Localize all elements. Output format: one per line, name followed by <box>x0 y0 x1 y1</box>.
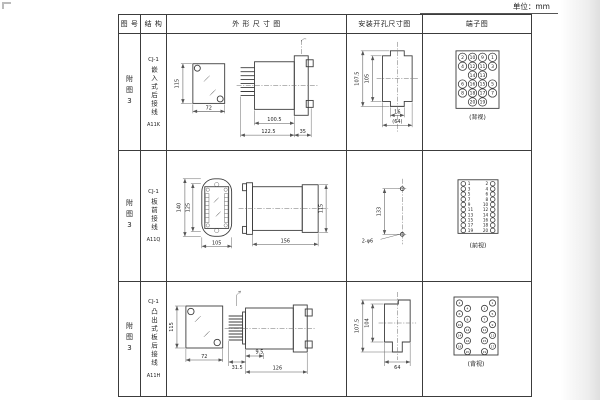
dim-label: 72 <box>206 105 212 111</box>
figure-number: 附图3 <box>125 75 135 109</box>
dim-label: 107.5 <box>354 319 360 333</box>
terminal-circle <box>461 192 466 197</box>
row3-terminal-cell: 2610141848121620371115191591317 (背视) <box>423 282 531 396</box>
terminal-circle <box>490 223 495 228</box>
dim-label: 105 <box>212 240 221 246</box>
terminal-number: 10 <box>458 323 462 327</box>
terminal-number: 14 <box>458 334 462 338</box>
dim-label: 64 <box>394 365 400 371</box>
terminal-number: 2 <box>459 301 461 305</box>
dim-label: 133 <box>377 207 383 216</box>
row1-outline-drawing: 115 72 100.5 <box>167 34 346 150</box>
terminal-number: 19 <box>468 228 474 233</box>
row2-terminal-drawing: 1357911131517192468101214161820 (前视) <box>423 151 531 281</box>
terminal-number: 7 <box>491 91 494 97</box>
row3-structure-cell: CJ-1 凸出式板后接线 A11H <box>141 282 167 396</box>
terminal-number: 6 <box>459 312 461 316</box>
row1-structure-cell: CJ-1 嵌入式后接线 A11K <box>141 34 167 151</box>
terminal-number: 11 <box>483 328 487 332</box>
front-dimensions: 115 72 <box>169 306 223 362</box>
row2-mounting-cell: 133 2-φ6 <box>347 151 423 282</box>
terminal-grid: 1357911131517192468101214161820 <box>461 181 495 233</box>
terminal-number: 16 <box>466 339 470 343</box>
row3-outline-drawing: 115 72 31.5 <box>167 282 346 396</box>
dim-label: 115 <box>319 204 325 213</box>
row1-terminal-drawing: 2109141211314136161558181772019 (背视) <box>423 34 531 150</box>
structure-model: CJ-1 <box>148 189 159 195</box>
terminal-number: 3 <box>484 307 486 311</box>
terminal-number: 5 <box>491 82 494 88</box>
terminal-number: 18 <box>470 91 476 97</box>
terminal-number: 13 <box>491 334 495 338</box>
terminal-circle <box>490 228 495 233</box>
header-structure: 结 构 <box>141 15 167 34</box>
front-dimensions: 140 125 105 <box>176 179 231 248</box>
terminal-circle <box>461 228 466 233</box>
terminal-circle <box>461 213 466 218</box>
row2-mounting-drawing: 133 2-φ6 <box>347 151 422 281</box>
terminal-circle <box>461 187 466 192</box>
unit-label: 单位：mm <box>420 1 558 14</box>
row1-outline-cell: 115 72 100.5 <box>167 34 347 151</box>
terminal-number: 11 <box>480 64 486 70</box>
terminal-number: 4 <box>461 64 464 70</box>
structure-model: CJ-1 <box>148 299 159 305</box>
terminal-number: 18 <box>458 344 462 348</box>
terminal-number: 1 <box>492 301 494 305</box>
terminal-number: 8 <box>467 317 469 321</box>
row1-terminal-cell: 2109141211314136161558181772019 (背视) <box>423 34 531 151</box>
cutout-dimensions: 107.5 105 16 (64) <box>354 51 412 127</box>
side-view <box>225 291 316 352</box>
terminal-grid: 2109141211314136161558181772019 <box>458 53 496 106</box>
structure-desc: 板前接线 <box>149 198 159 232</box>
terminal-circle <box>490 213 495 218</box>
terminal-number: 17 <box>491 344 495 348</box>
terminal-number: 20 <box>470 100 476 106</box>
view-label: (前视) <box>470 241 487 249</box>
front-view <box>186 306 223 348</box>
row2-outline-drawing: 140 125 105 <box>167 151 346 281</box>
terminal-number: 12 <box>470 64 476 70</box>
terminal-number: 9 <box>492 323 494 327</box>
structure-code: A11Q <box>147 237 161 243</box>
terminal-number: 20 <box>483 228 489 233</box>
header-fig-no: 图 号 <box>119 15 141 34</box>
terminal-number: 3 <box>491 64 494 70</box>
terminal-number: 6 <box>461 82 464 88</box>
figure-number: 附图3 <box>125 322 135 356</box>
terminal-number: 8 <box>461 91 464 97</box>
row3-mounting-drawing: 107.5 104 64 <box>347 282 422 396</box>
dim-label: 122.5 <box>261 129 275 135</box>
dim-label: (64) <box>392 119 402 125</box>
terminal-circle <box>461 218 466 223</box>
figure-number: 附图3 <box>125 199 135 233</box>
row2-outline-cell: 140 125 105 <box>167 151 347 282</box>
dim-label: 126 <box>273 365 282 371</box>
front-dimensions: 115 72 <box>174 64 224 114</box>
terminal-circle <box>490 192 495 197</box>
manual-page: 单位：mm 图 号 结 构 外 形 尺 寸 图 安装开孔尺寸图 端子图 附图3 … <box>0 0 600 400</box>
terminal-number: 2 <box>461 55 464 61</box>
terminal-number: 5 <box>492 312 494 316</box>
side-dimensions: 31.5 9.5 126 <box>229 341 308 374</box>
cutout-profile <box>379 292 417 360</box>
terminal-circle <box>461 181 466 186</box>
row2-structure-cell: CJ-1 板前接线 A11Q <box>141 151 167 282</box>
terminal-number: 17 <box>480 91 486 97</box>
terminal-number: 16 <box>470 82 476 88</box>
terminal-number: 12 <box>466 328 470 332</box>
row1-mounting-drawing: 107.5 105 16 (64) <box>347 34 422 150</box>
terminal-number: 7 <box>484 317 486 321</box>
dim-label: 9.5 <box>256 349 264 355</box>
row1-figure-cell: 附图3 <box>119 34 141 151</box>
dimension-table: 图 号 结 构 外 形 尺 寸 图 安装开孔尺寸图 端子图 附图3 CJ-1 嵌… <box>118 14 532 397</box>
structure-desc: 嵌入式后接线 <box>149 66 159 117</box>
structure-code: A11K <box>147 122 160 128</box>
front-view <box>193 64 225 104</box>
dim-label: 115 <box>169 322 175 332</box>
row3-outline-cell: 115 72 31.5 <box>167 282 347 396</box>
side-view <box>237 39 319 116</box>
terminal-circle <box>490 218 495 223</box>
dim-label: 104 <box>365 318 371 328</box>
terminal-circle <box>490 181 495 186</box>
row3-terminal-drawing: 2610141848121620371115191591317 (背视) <box>423 282 531 396</box>
dim-label: 105 <box>365 74 371 83</box>
terminal-circle <box>490 197 495 202</box>
structure-desc: 凸出式板后接线 <box>149 308 159 368</box>
dim-label: 140 <box>176 203 182 212</box>
dim-label: 16 <box>394 109 400 115</box>
scan-corner-mark <box>2 2 11 9</box>
terminal-number: 4 <box>467 307 469 311</box>
side-view <box>239 183 329 235</box>
terminal-number: 19 <box>480 100 486 106</box>
dim-label: 100.5 <box>267 117 281 123</box>
terminal-circle <box>490 187 495 192</box>
dim-label: 156 <box>281 238 290 244</box>
header-terminal: 端子图 <box>423 15 531 34</box>
hole-dimensions: 133 2-φ6 <box>362 189 403 245</box>
row3-mounting-cell: 107.5 104 64 <box>347 282 423 396</box>
hole-callout: 2-φ6 <box>362 238 373 244</box>
structure-code: A11H <box>147 373 161 379</box>
structure-model: CJ-1 <box>148 57 159 63</box>
terminal-circle <box>461 202 466 207</box>
view-label: (背视) <box>469 113 486 121</box>
terminal-number: 15 <box>483 339 487 343</box>
row2-terminal-cell: 1357911131517192468101214161820 (前视) <box>423 151 531 282</box>
dim-label: 31.5 <box>232 365 243 371</box>
dim-label: 115 <box>174 79 180 88</box>
terminal-number: 10 <box>470 55 476 61</box>
terminal-grid: 2610141848121620371115191591317 <box>456 300 495 355</box>
terminal-circle <box>490 202 495 207</box>
row2-figure-cell: 附图3 <box>119 151 141 282</box>
terminal-circle <box>461 223 466 228</box>
terminal-circle <box>461 207 466 212</box>
terminal-number: 13 <box>480 73 486 79</box>
front-view <box>202 179 232 237</box>
terminal-number: 1 <box>491 55 494 61</box>
terminal-circle <box>461 197 466 202</box>
terminal-number: 9 <box>481 55 484 61</box>
row1-mounting-cell: 107.5 105 16 (64) <box>347 34 423 151</box>
terminal-number: 20 <box>466 350 470 354</box>
header-mounting: 安装开孔尺寸图 <box>347 15 423 34</box>
terminal-circle <box>490 207 495 212</box>
view-label: (背视) <box>468 360 485 368</box>
header-outline: 外 形 尺 寸 图 <box>167 15 347 34</box>
dim-label: 107.5 <box>354 72 360 86</box>
side-dimensions: 156 115 <box>253 185 329 247</box>
terminal-number: 14 <box>470 73 476 79</box>
dim-label: 35 <box>300 129 306 135</box>
terminal-number: 15 <box>480 82 486 88</box>
terminal-number: 19 <box>483 350 487 354</box>
dim-label: 125 <box>185 203 191 212</box>
side-dimensions: 100.5 122.5 35 <box>241 96 312 137</box>
cutout-dimensions: 107.5 104 64 <box>354 300 410 371</box>
row3-figure-cell: 附图3 <box>119 282 141 396</box>
dim-label: 72 <box>201 354 207 360</box>
